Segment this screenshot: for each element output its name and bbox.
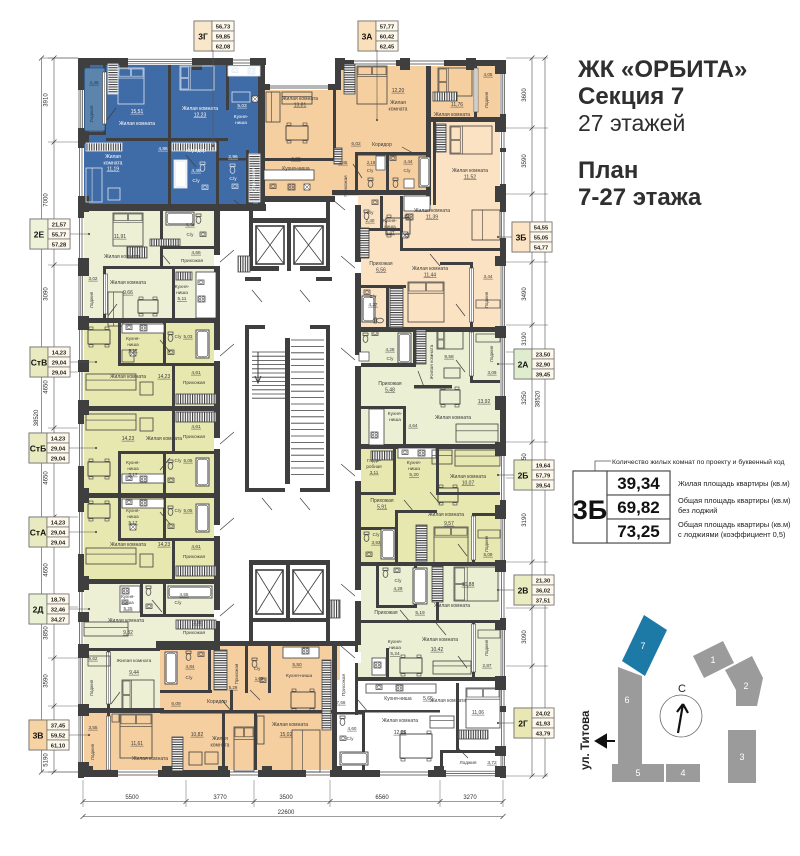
svg-text:3,55: 3,55 bbox=[89, 725, 98, 730]
svg-text:59,52: 59,52 bbox=[51, 733, 66, 739]
svg-text:С/у: С/у bbox=[175, 458, 183, 463]
svg-text:1,65: 1,65 bbox=[255, 676, 264, 681]
svg-text:Кухня-ниша: Кухня-ниша bbox=[384, 696, 412, 702]
svg-text:ниша: ниша bbox=[235, 121, 247, 126]
svg-text:ниша: ниша bbox=[127, 514, 139, 519]
svg-text:Общая площадь квартиры (кв.м): Общая площадь квартиры (кв.м) bbox=[678, 496, 790, 505]
svg-text:2Д: 2Д bbox=[33, 604, 44, 614]
svg-text:3590: 3590 bbox=[522, 154, 528, 168]
svg-text:61,10: 61,10 bbox=[51, 743, 66, 749]
svg-text:План: План bbox=[578, 157, 638, 184]
svg-text:19,64: 19,64 bbox=[536, 463, 551, 469]
svg-text:4: 4 bbox=[680, 768, 685, 778]
svg-text:С/у: С/у bbox=[187, 232, 195, 237]
svg-text:4,45: 4,45 bbox=[186, 222, 195, 227]
svg-text:ниша: ниша bbox=[122, 600, 134, 605]
svg-text:Жилая комната: Жилая комната bbox=[450, 474, 486, 480]
svg-text:ул. Титова: ул. Титова bbox=[580, 710, 592, 770]
svg-text:5,17: 5,17 bbox=[129, 520, 138, 525]
svg-text:Жилая: Жилая bbox=[390, 100, 406, 106]
svg-text:32,90: 32,90 bbox=[536, 362, 551, 368]
svg-text:4,29: 4,29 bbox=[394, 586, 403, 591]
svg-text:Жилая площадь квартиры (кв.м): Жилая площадь квартиры (кв.м) bbox=[678, 479, 790, 488]
svg-text:С/у: С/у bbox=[347, 736, 355, 741]
svg-text:Жилая комната: Жилая комната bbox=[434, 603, 470, 609]
svg-text:6: 6 bbox=[624, 695, 629, 705]
svg-text:3Г: 3Г bbox=[198, 31, 208, 41]
svg-text:Прихожая: Прихожая bbox=[183, 434, 206, 440]
svg-text:3,93: 3,93 bbox=[372, 540, 381, 545]
svg-text:Кухня-: Кухня- bbox=[388, 411, 403, 417]
svg-text:СтБ: СтБ bbox=[30, 443, 46, 453]
svg-text:Прихожая: Прихожая bbox=[343, 175, 348, 197]
svg-text:Коридор: Коридор bbox=[186, 148, 206, 154]
svg-text:Лоджия: Лоджия bbox=[484, 639, 489, 656]
svg-text:Кухня-: Кухня- bbox=[388, 639, 403, 645]
svg-text:18,76: 18,76 bbox=[51, 597, 66, 603]
svg-text:комната: комната bbox=[389, 106, 408, 112]
svg-text:60,42: 60,42 bbox=[380, 34, 395, 40]
svg-text:38520: 38520 bbox=[34, 409, 40, 426]
svg-text:Жилая комната: Жилая комната bbox=[435, 415, 471, 421]
svg-text:39,45: 39,45 bbox=[536, 372, 551, 378]
svg-text:ниша: ниша bbox=[127, 342, 139, 347]
svg-text:Кухня-: Кухня- bbox=[126, 336, 140, 341]
svg-text:23,50: 23,50 bbox=[536, 352, 551, 358]
svg-text:Жилая: Жилая bbox=[105, 154, 121, 160]
svg-text:5: 5 bbox=[635, 768, 640, 778]
svg-text:Кухня-: Кухня- bbox=[126, 508, 140, 513]
svg-text:4650: 4650 bbox=[44, 380, 50, 394]
svg-text:6560: 6560 bbox=[375, 795, 389, 801]
svg-text:3090: 3090 bbox=[44, 287, 50, 301]
svg-text:3,09: 3,09 bbox=[488, 370, 497, 375]
svg-text:Кухня-ниша: Кухня-ниша bbox=[286, 673, 313, 679]
svg-text:5,17: 5,17 bbox=[129, 348, 138, 353]
svg-text:С/у: С/у bbox=[175, 508, 183, 513]
svg-text:57,79: 57,79 bbox=[536, 473, 551, 479]
svg-text:3,02: 3,02 bbox=[89, 276, 98, 281]
svg-text:62,08: 62,08 bbox=[216, 44, 231, 50]
svg-text:3,45: 3,45 bbox=[339, 160, 348, 165]
svg-text:Жилая комната: Жилая комната bbox=[428, 512, 464, 518]
svg-text:робная: робная bbox=[366, 464, 382, 469]
svg-text:С/у: С/у bbox=[404, 168, 412, 173]
svg-text:Прихожая: Прихожая bbox=[370, 498, 393, 504]
svg-text:Кухня-: Кухня- bbox=[175, 284, 190, 290]
svg-text:С/у: С/у bbox=[254, 666, 261, 671]
svg-text:36,02: 36,02 bbox=[536, 588, 551, 594]
svg-text:С/у: С/у bbox=[387, 356, 395, 361]
svg-text:С/у: С/у bbox=[175, 334, 183, 339]
svg-text:Лоджия: Лоджия bbox=[89, 291, 94, 308]
svg-text:37,45: 37,45 bbox=[51, 723, 66, 729]
svg-text:21,57: 21,57 bbox=[52, 222, 67, 228]
svg-text:5190: 5190 bbox=[44, 753, 50, 767]
svg-text:с лоджиями (коэффициент 0,5): с лоджиями (коэффициент 0,5) bbox=[678, 530, 785, 539]
svg-text:Прихожая: Прихожая bbox=[183, 630, 206, 636]
svg-text:ЖК «ОРБИТА»: ЖК «ОРБИТА» bbox=[577, 56, 747, 83]
svg-text:Прихожая: Прихожая bbox=[369, 261, 392, 267]
svg-text:ниша: ниша bbox=[389, 418, 401, 423]
svg-text:2Е: 2Е bbox=[34, 229, 45, 239]
svg-text:3Б: 3Б bbox=[573, 495, 607, 525]
svg-text:ниша: ниша bbox=[389, 646, 401, 651]
svg-text:Лоджия: Лоджия bbox=[89, 105, 95, 122]
svg-text:7: 7 bbox=[640, 641, 645, 651]
svg-text:ниша: ниша bbox=[384, 224, 396, 229]
svg-text:Прихожая: Прихожая bbox=[374, 610, 397, 616]
svg-text:2В: 2В bbox=[518, 585, 529, 595]
svg-text:Лоджия: Лоджия bbox=[484, 291, 489, 308]
svg-text:С/у: С/у bbox=[192, 178, 200, 184]
svg-text:4,05: 4,05 bbox=[484, 72, 493, 77]
svg-text:Общая площадь квартиры (кв.м): Общая площадь квартиры (кв.м) bbox=[678, 520, 790, 529]
svg-text:3270: 3270 bbox=[463, 795, 477, 801]
svg-text:Прихожая: Прихожая bbox=[234, 663, 239, 684]
svg-text:Прихожая: Прихожая bbox=[378, 381, 401, 387]
svg-text:С/у: С/у bbox=[175, 600, 183, 605]
svg-text:4650: 4650 bbox=[44, 563, 50, 577]
svg-text:5500: 5500 bbox=[125, 795, 139, 801]
svg-text:3: 3 bbox=[739, 752, 744, 762]
svg-text:4,64: 4,64 bbox=[409, 423, 418, 428]
svg-text:7000: 7000 bbox=[44, 193, 50, 207]
svg-text:ниша: ниша bbox=[408, 467, 420, 472]
svg-text:Количество жилых комнат по про: Количество жилых комнат по проекту и бук… bbox=[612, 458, 785, 466]
svg-text:14,23: 14,23 bbox=[51, 520, 66, 526]
svg-text:С/у: С/у bbox=[367, 210, 375, 215]
svg-text:5,81: 5,81 bbox=[251, 188, 260, 193]
svg-text:14,23: 14,23 bbox=[51, 436, 66, 442]
svg-text:37,51: 37,51 bbox=[536, 598, 551, 604]
svg-text:С/у: С/у bbox=[186, 675, 194, 680]
svg-text:Жилая комната: Жилая комната bbox=[117, 658, 152, 664]
svg-text:Жилая комната: Жилая комната bbox=[430, 698, 466, 704]
svg-text:СтА: СтА bbox=[30, 527, 46, 537]
svg-text:41,93: 41,93 bbox=[536, 721, 551, 727]
svg-text:73,25: 73,25 bbox=[617, 522, 660, 541]
svg-text:54,55: 54,55 bbox=[534, 225, 549, 231]
svg-text:3А: 3А bbox=[362, 31, 373, 41]
svg-text:7,66: 7,66 bbox=[337, 700, 346, 705]
svg-text:С/у: С/у bbox=[373, 532, 381, 537]
svg-text:39,54: 39,54 bbox=[536, 483, 551, 489]
svg-text:Гарде-: Гарде- bbox=[367, 458, 381, 463]
svg-text:3910: 3910 bbox=[44, 93, 50, 107]
svg-text:4,44: 4,44 bbox=[404, 159, 413, 164]
svg-text:Лоджия: Лоджия bbox=[89, 679, 94, 696]
svg-text:55,05: 55,05 bbox=[534, 235, 549, 241]
svg-text:55,77: 55,77 bbox=[52, 232, 67, 238]
svg-text:С/у: С/у bbox=[370, 294, 378, 299]
svg-text:3В: 3В bbox=[33, 730, 44, 740]
svg-text:Жилая комната: Жилая комната bbox=[282, 96, 318, 102]
svg-text:Прихожая: Прихожая bbox=[183, 380, 206, 386]
svg-text:2А: 2А bbox=[518, 359, 529, 369]
svg-text:62,45: 62,45 bbox=[380, 44, 395, 50]
svg-text:Лоджия: Лоджия bbox=[489, 345, 494, 362]
svg-text:3600: 3600 bbox=[522, 88, 528, 102]
svg-text:5,17: 5,17 bbox=[129, 472, 138, 477]
svg-text:3250: 3250 bbox=[522, 391, 528, 405]
svg-text:комната: комната bbox=[211, 742, 230, 748]
svg-text:4,28: 4,28 bbox=[386, 347, 395, 352]
svg-text:3Б: 3Б bbox=[516, 232, 527, 242]
svg-text:СтВ: СтВ bbox=[31, 357, 47, 367]
svg-text:Лоджия: Лоджия bbox=[90, 743, 95, 760]
svg-text:34,27: 34,27 bbox=[51, 617, 66, 623]
svg-text:2,19: 2,19 bbox=[367, 160, 376, 165]
svg-text:Кухня-: Кухня- bbox=[234, 114, 249, 120]
svg-text:56,73: 56,73 bbox=[216, 24, 231, 30]
svg-text:Кухня-: Кухня- bbox=[383, 218, 397, 223]
svg-text:3190: 3190 bbox=[522, 513, 528, 527]
svg-text:С/у: С/у bbox=[367, 168, 374, 173]
svg-text:24,02: 24,02 bbox=[536, 711, 551, 717]
svg-text:Коридор: Коридор bbox=[207, 699, 227, 705]
svg-text:Секция 7: Секция 7 bbox=[578, 83, 684, 110]
svg-text:7-27 этажа: 7-27 этажа bbox=[578, 184, 702, 211]
svg-text:Жилая комната: Жилая комната bbox=[422, 637, 458, 643]
svg-text:3590: 3590 bbox=[44, 674, 50, 688]
svg-text:Жилая комната: Жилая комната bbox=[132, 756, 168, 762]
svg-text:Жилая комната: Жилая комната bbox=[110, 542, 146, 548]
svg-text:ниша: ниша bbox=[176, 291, 188, 296]
svg-text:Лоджия: Лоджия bbox=[484, 91, 489, 108]
svg-text:Лоджия: Лоджия bbox=[460, 760, 477, 766]
svg-text:2Г: 2Г bbox=[518, 718, 528, 728]
svg-text:69,82: 69,82 bbox=[617, 498, 660, 517]
svg-text:С: С bbox=[678, 683, 686, 695]
svg-text:29,04: 29,04 bbox=[51, 456, 66, 462]
svg-text:21,30: 21,30 bbox=[536, 578, 551, 584]
svg-text:3,44: 3,44 bbox=[484, 274, 493, 279]
svg-text:Жилая комната: Жилая комната bbox=[272, 722, 308, 728]
svg-text:Прихожая: Прихожая bbox=[183, 554, 206, 560]
svg-text:Жилая комната: Жилая комната bbox=[412, 266, 448, 272]
svg-text:Прихожая: Прихожая bbox=[251, 167, 256, 189]
svg-text:29,04: 29,04 bbox=[51, 446, 66, 452]
svg-text:38520: 38520 bbox=[536, 390, 542, 407]
svg-text:27 этажей: 27 этажей bbox=[578, 110, 685, 136]
svg-text:Жилая комната: Жилая комната bbox=[110, 280, 146, 286]
svg-text:57,28: 57,28 bbox=[52, 242, 67, 248]
svg-text:Лоджия: Лоджия bbox=[484, 535, 489, 552]
svg-text:Жилая: Жилая bbox=[212, 736, 228, 742]
svg-text:без лоджий: без лоджий bbox=[678, 506, 717, 515]
svg-text:3770: 3770 bbox=[213, 795, 227, 801]
svg-text:Жилая комната: Жилая комната bbox=[119, 121, 155, 127]
svg-text:Жилая комната: Жилая комната bbox=[382, 718, 418, 724]
svg-text:Кухня-: Кухня- bbox=[121, 594, 135, 599]
svg-text:3,11: 3,11 bbox=[370, 470, 379, 475]
svg-text:32,46: 32,46 bbox=[51, 607, 66, 613]
svg-text:3500: 3500 bbox=[279, 795, 293, 801]
svg-text:3850: 3850 bbox=[44, 626, 50, 640]
svg-text:22600: 22600 bbox=[278, 810, 295, 816]
svg-text:комната: комната bbox=[104, 160, 123, 166]
svg-text:5,09: 5,09 bbox=[484, 552, 493, 557]
svg-text:Жилая комната: Жилая комната bbox=[429, 344, 435, 379]
svg-text:2,87: 2,87 bbox=[483, 663, 492, 668]
svg-text:4,55: 4,55 bbox=[180, 592, 189, 597]
svg-text:59,85: 59,85 bbox=[216, 34, 231, 40]
svg-text:Коридор: Коридор bbox=[372, 142, 392, 148]
svg-text:Кухня-: Кухня- bbox=[126, 460, 140, 465]
svg-text:4,84: 4,84 bbox=[186, 664, 195, 669]
svg-text:Жилая комната: Жилая комната bbox=[434, 112, 470, 118]
svg-text:5,05: 5,05 bbox=[184, 508, 193, 513]
svg-text:2: 2 bbox=[743, 681, 748, 691]
svg-text:3190: 3190 bbox=[522, 332, 528, 346]
svg-text:5,05: 5,05 bbox=[184, 458, 193, 463]
svg-text:1: 1 bbox=[710, 655, 715, 665]
svg-text:57,77: 57,77 bbox=[380, 24, 395, 30]
svg-text:54,77: 54,77 bbox=[534, 245, 549, 251]
svg-text:2,40: 2,40 bbox=[366, 218, 375, 223]
svg-text:Прихожая: Прихожая bbox=[181, 258, 204, 264]
svg-text:4,27: 4,27 bbox=[369, 302, 378, 307]
svg-text:5,25: 5,25 bbox=[124, 606, 133, 611]
svg-text:Жилая комната: Жилая комната bbox=[104, 254, 140, 260]
svg-text:2Б: 2Б bbox=[518, 470, 529, 480]
svg-text:Жилая комната: Жилая комната bbox=[108, 618, 144, 624]
svg-text:5,62: 5,62 bbox=[89, 656, 98, 661]
svg-text:Жилая комната: Жилая комната bbox=[146, 436, 182, 442]
svg-text:39,34: 39,34 bbox=[617, 474, 660, 493]
svg-text:43,79: 43,79 bbox=[536, 731, 551, 737]
svg-text:Жилая комната: Жилая комната bbox=[110, 374, 146, 380]
svg-text:ниша: ниша bbox=[127, 466, 139, 471]
svg-text:Жилая комната: Жилая комната bbox=[414, 208, 450, 214]
svg-text:5,03: 5,03 bbox=[184, 334, 193, 339]
svg-text:Кухня-: Кухня- bbox=[407, 460, 422, 466]
svg-text:14,23: 14,23 bbox=[52, 350, 67, 356]
svg-text:Жилая комната: Жилая комната bbox=[452, 168, 488, 174]
svg-text:29,04: 29,04 bbox=[51, 530, 66, 536]
svg-text:С/у: С/у bbox=[395, 578, 403, 583]
svg-text:Кухня-ниша: Кухня-ниша bbox=[282, 166, 310, 172]
svg-text:5,47: 5,47 bbox=[386, 230, 395, 235]
svg-text:С/у: С/у bbox=[229, 176, 237, 182]
svg-text:3490: 3490 bbox=[522, 287, 528, 301]
svg-text:4650: 4650 bbox=[44, 471, 50, 485]
svg-text:4,60: 4,60 bbox=[348, 726, 357, 731]
svg-text:29,04: 29,04 bbox=[52, 360, 67, 366]
svg-text:29,04: 29,04 bbox=[51, 540, 66, 546]
svg-text:3090: 3090 bbox=[522, 630, 528, 644]
svg-text:Прихожая: Прихожая bbox=[341, 673, 347, 696]
svg-text:29,04: 29,04 bbox=[52, 370, 67, 376]
svg-text:5,29: 5,29 bbox=[229, 685, 238, 690]
